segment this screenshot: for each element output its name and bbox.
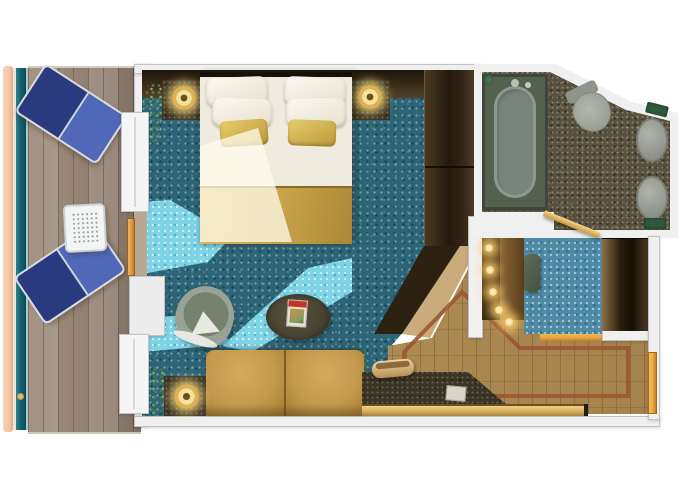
window-mullion bbox=[133, 339, 135, 409]
bedside-lamp-right bbox=[358, 85, 382, 109]
headboard bbox=[200, 72, 352, 77]
window-panel-lower bbox=[119, 334, 149, 414]
bedside-lamp-left bbox=[172, 86, 196, 110]
wardrobe-door-seam bbox=[425, 166, 479, 168]
sliding-door-opening bbox=[134, 212, 147, 276]
magazine-photo bbox=[289, 309, 304, 324]
magazine-header bbox=[288, 300, 306, 307]
king-bed bbox=[200, 72, 352, 242]
mesh-table-grid bbox=[71, 211, 99, 244]
leather-sofa bbox=[206, 350, 364, 416]
bathtub-handle bbox=[525, 82, 531, 88]
window-panel-upper bbox=[121, 112, 149, 212]
vanity-light-bulb bbox=[495, 306, 503, 314]
gold-drawer-front bbox=[362, 404, 584, 416]
lounge-chair-fold-bar bbox=[58, 92, 89, 138]
vanity-light-bulb bbox=[486, 266, 494, 274]
bathtub-corner-plant bbox=[484, 75, 494, 85]
green-towel-bottom bbox=[644, 218, 666, 229]
telephone-handset bbox=[375, 361, 409, 370]
bathtub-basin bbox=[494, 86, 536, 198]
bathtub bbox=[482, 74, 548, 210]
plant-window-bottom bbox=[146, 366, 166, 414]
vanity-light-bulb bbox=[489, 288, 497, 296]
drawer-divider bbox=[584, 404, 588, 416]
cabin-bottom-wall bbox=[134, 416, 660, 427]
side-table-lamp bbox=[174, 384, 199, 409]
window-panel-middle-open bbox=[129, 276, 165, 336]
vanity-stool bbox=[524, 254, 540, 292]
note-card bbox=[445, 385, 466, 402]
cabin-entry-door bbox=[648, 352, 657, 414]
balcony-railing bbox=[16, 68, 26, 430]
lounge-chair-fold-bar bbox=[56, 249, 88, 295]
balcony-mesh-table bbox=[63, 203, 107, 253]
stateroom-floor-plan bbox=[0, 0, 680, 486]
bathtub-faucet bbox=[511, 79, 519, 87]
vanity-light-bulb bbox=[485, 244, 493, 252]
sink-right bbox=[636, 176, 668, 220]
sofa-back-shadow bbox=[206, 404, 364, 416]
railing-latch bbox=[17, 393, 24, 400]
magazine bbox=[286, 299, 308, 327]
closet-bottom-wall bbox=[602, 330, 652, 341]
sliding-door-frame-open bbox=[127, 218, 135, 276]
ship-hull-strip bbox=[3, 66, 13, 432]
window-mullion bbox=[134, 117, 136, 207]
pillow-gold bbox=[288, 119, 337, 147]
vanity-light-bulb bbox=[505, 318, 513, 326]
sink-left bbox=[636, 118, 668, 162]
wardrobe-closet bbox=[602, 238, 648, 331]
